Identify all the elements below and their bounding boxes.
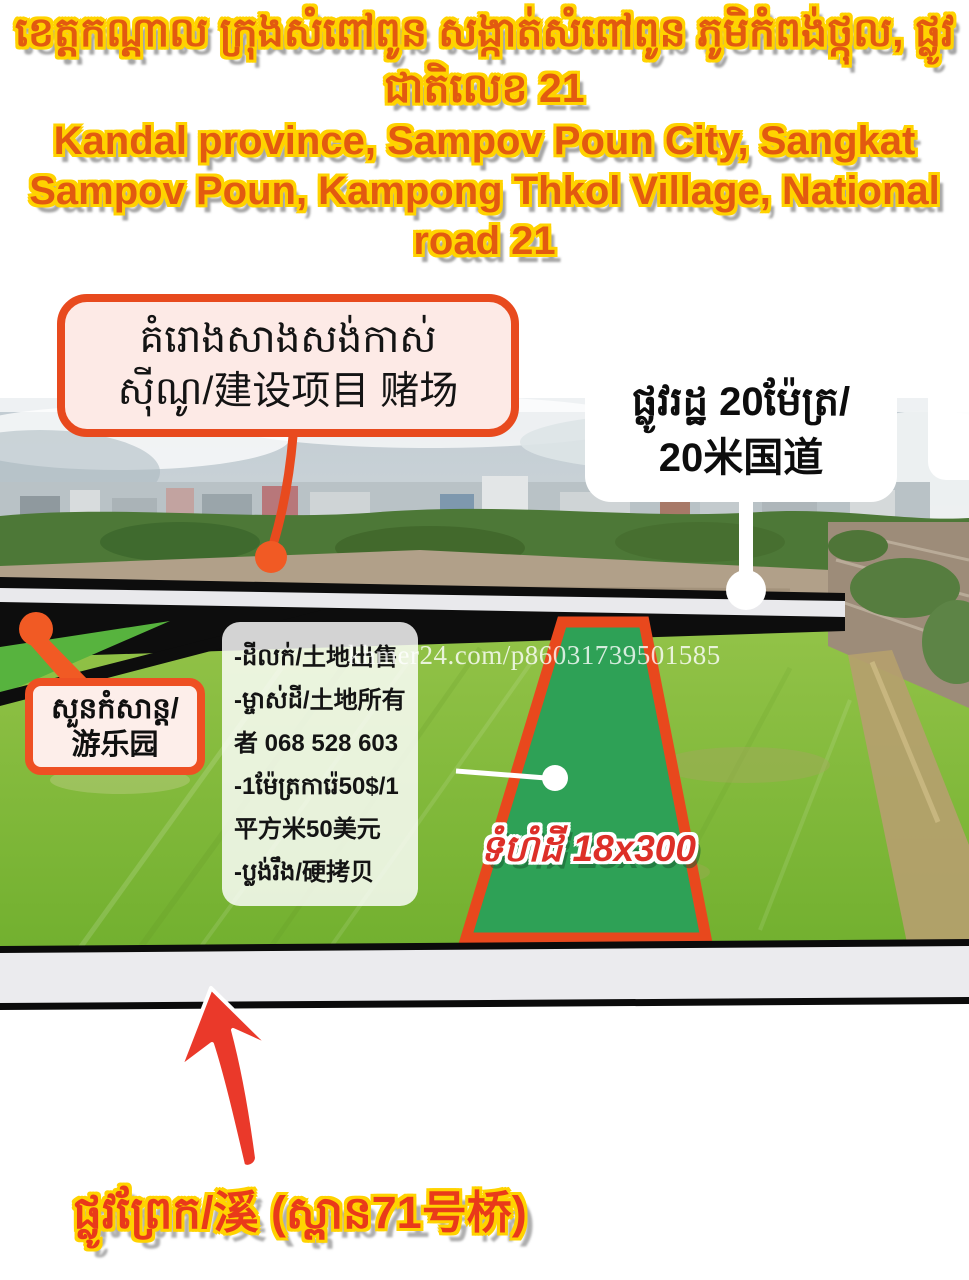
info-line-price-km: -1ម៉ែត្រការ៉េ50$/1 [234, 765, 412, 808]
parcel-size-label: ទំហំដី 18x300 [468, 826, 708, 880]
info-line-hard-title: -ប្លង់រឹង/硬拷贝 [234, 851, 412, 894]
road-callout-line1: ផ្លូវរដ្ឋ 20ម៉ែត្រ/ [632, 374, 850, 430]
main-road-callout: ផ្លូវរដ្ឋ 20ម៉ែត្រ/ 20米国道 [585, 358, 897, 502]
land-listing-poster: ខេត្តកណ្តាល ក្រុងសំពៅពូន សង្កាត់សំពៅពូន … [0, 0, 969, 1280]
road-callout-line2: 20米国道 [659, 430, 824, 486]
up-arrow [180, 988, 271, 1167]
info-line-owner: -ម្ចាស់ដី/土地所有 [234, 679, 412, 722]
header: ខេត្តកណ្តាល ក្រុងសំពៅពូន សង្កាត់សំពៅពូន … [0, 4, 969, 266]
title-english-line1: Kandal province, Sampov Poun City, Sangk… [0, 116, 969, 166]
title-khmer-line2: ជាតិលេខ 21 [0, 60, 969, 116]
info-line-price-cn: 平方米50美元 [234, 808, 412, 851]
stream-band [0, 939, 969, 1010]
title-english-line3: road 21 [0, 216, 969, 266]
park-callout-line1: សួនកំសាន្ត/ [51, 691, 179, 727]
info-line-phone: 者 068 528 603 [234, 722, 412, 765]
title-khmer-line1: ខេត្តកណ្តាល ក្រុងសំពៅពូន សង្កាត់សំពៅពូន … [0, 4, 969, 60]
title-english-line2: Sampov Poun, Kampong Thkol Village, Nati… [0, 166, 969, 216]
casino-callout-line1: គំរោងសាងសង់កាស់ [139, 314, 436, 366]
park-callout-line2: 游乐园 [71, 727, 158, 763]
casino-project-callout: គំរោងសាងសង់កាស់ ស៊ីណូ/建设项目 赌场 [57, 294, 519, 437]
casino-callout-line2: ស៊ីណូ/建设项目 赌场 [118, 366, 458, 418]
amusement-park-callout: សួនកំសាន្ត/ 游乐园 [25, 678, 205, 775]
stream-bridge-label: ផ្លូវព្រែក/溪 (ស្ពាន71号桥) [70, 1176, 530, 1250]
watermark-text: khmer24.com/p86031739501585 [348, 640, 721, 671]
